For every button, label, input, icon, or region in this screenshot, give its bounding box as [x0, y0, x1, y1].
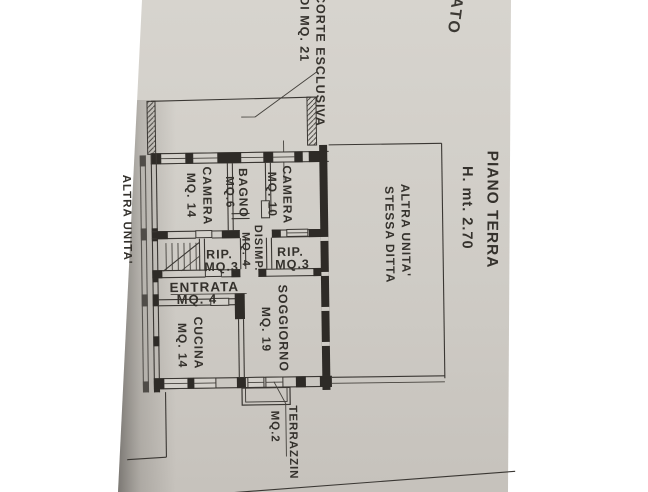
room-label-bagno-name: BAGNO: [236, 168, 251, 218]
floor-title-label: PIANO TERRA: [483, 151, 500, 269]
room-label-soggiorno-area: MQ. 19: [259, 307, 274, 353]
room-label-terrazzino-area: MQ.2: [268, 411, 280, 443]
room-label-camera1-name: CAMERA: [200, 166, 215, 225]
floor-height-label: H. mt. 2.70: [459, 166, 475, 250]
courtyard-label-line2: DI MQ. 21: [297, 0, 311, 62]
room-label-entrata-area: MQ. 4: [177, 291, 218, 307]
room-label-rip2-area: MQ.3: [275, 257, 310, 271]
room-label-bagno-area: MQ.6: [223, 176, 235, 208]
room-label-cucina-name: CUCINA: [191, 317, 206, 370]
floorplan-photo: ATO CORTE ESCLUSIVA DI MQ. 21 PIANO TERR…: [0, 0, 648, 492]
room-label-camera2-name: CAMERA: [280, 165, 295, 224]
courtyard-label-line1: CORTE ESCLUSIVA: [313, 0, 327, 127]
door-camera14: [196, 231, 212, 238]
room-label-disimp-area: MQ. 4: [239, 232, 251, 267]
floorplan-drawing: ATO CORTE ESCLUSIVA DI MQ. 21 PIANO TERR…: [0, 0, 648, 492]
room-label-cucina-area: MQ. 14: [175, 323, 190, 369]
room-label-rip1-area: MQ.3: [204, 260, 239, 274]
room-label-soggiorno-name: SOGGIORNO: [276, 284, 291, 372]
adjacent-left-label: ALTRA UNITA': [120, 175, 133, 265]
room-label-terrazzino-name: TERRAZZIN: [286, 405, 299, 479]
room-label-camera1-area: MQ. 14: [184, 173, 199, 219]
room-label-disimp-name: DISIMP.: [252, 225, 265, 272]
adjacent-right-label-line1: ALTRA UNITA': [398, 184, 413, 277]
room-label-camera2-area: MQ. 10: [265, 172, 280, 218]
adjacent-right-label-line2: STESSA DITTA: [382, 186, 397, 284]
